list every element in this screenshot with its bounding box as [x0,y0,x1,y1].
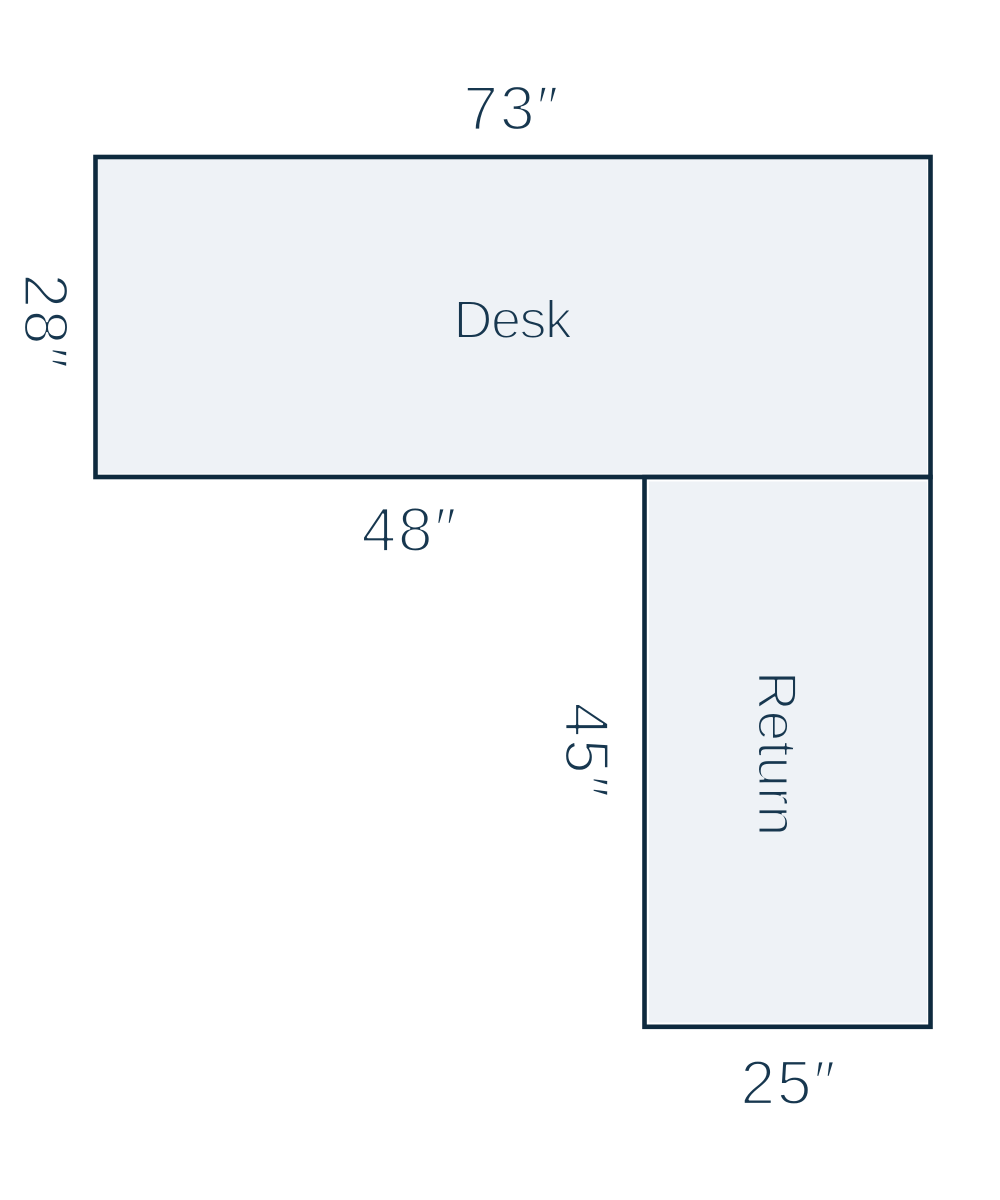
svg-text:Return: Return [747,671,809,836]
svg-text:73″: 73″ [464,75,561,144]
svg-text:28″: 28″ [11,274,80,371]
svg-text:48″: 48″ [362,496,459,565]
svg-text:25″: 25″ [741,1049,838,1118]
svg-text:45″: 45″ [552,703,621,800]
svg-text:Desk: Desk [453,290,573,350]
